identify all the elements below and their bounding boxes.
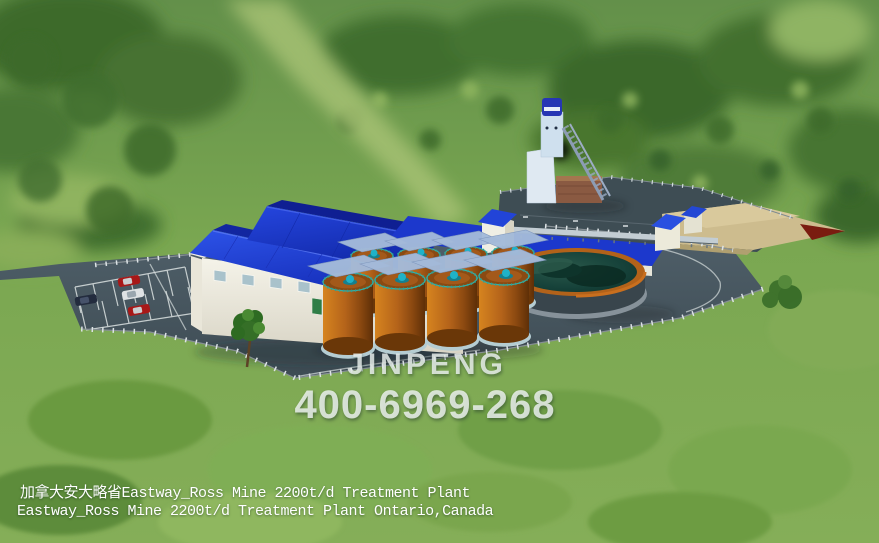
caption-line-2: Eastway_Ross Mine 2200t/d Treatment Plan… — [17, 503, 493, 520]
caption-line-1: 加拿大安大略省Eastway_Ross Mine 2200t/d Treatme… — [20, 481, 470, 502]
watermark-brand: JINPENG — [297, 348, 557, 382]
watermark-phone: 400-6969-268 — [290, 383, 560, 428]
plant-illustration — [0, 0, 879, 543]
mine-plant-render: JINPENG 400-6969-268 加拿大安大略省Eastway_Ross… — [0, 0, 879, 543]
